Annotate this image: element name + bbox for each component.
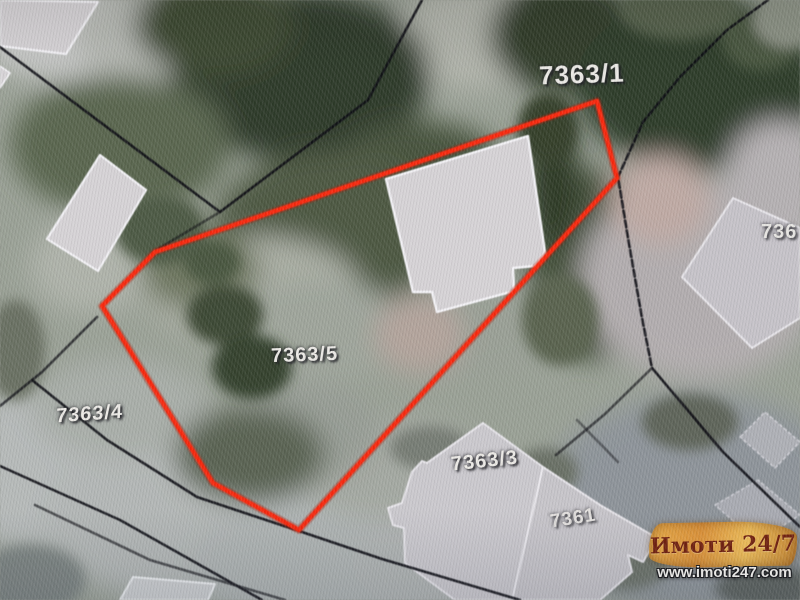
- terrain-blob: [642, 394, 738, 450]
- terrain-blob: [610, 155, 710, 245]
- satellite-map: [0, 0, 800, 600]
- watermark-url: www.imoti247.com: [652, 564, 797, 581]
- parcel-label-7363-1: 7363/1: [538, 58, 625, 92]
- terrain-blob: [522, 275, 598, 365]
- parcel-label-7363-5: 7363/5: [271, 343, 339, 368]
- watermark-banner: Имоти 24/7: [649, 520, 798, 568]
- cadastral-map-photo: 7363/1 7363/5 7363/4 7363/3 7361 736 Имо…: [0, 0, 800, 600]
- watermark-brand: Имоти 24/7: [650, 530, 797, 559]
- parcel-label-7363-4: 7363/4: [56, 401, 124, 429]
- parcel-label-736: 736: [761, 221, 797, 244]
